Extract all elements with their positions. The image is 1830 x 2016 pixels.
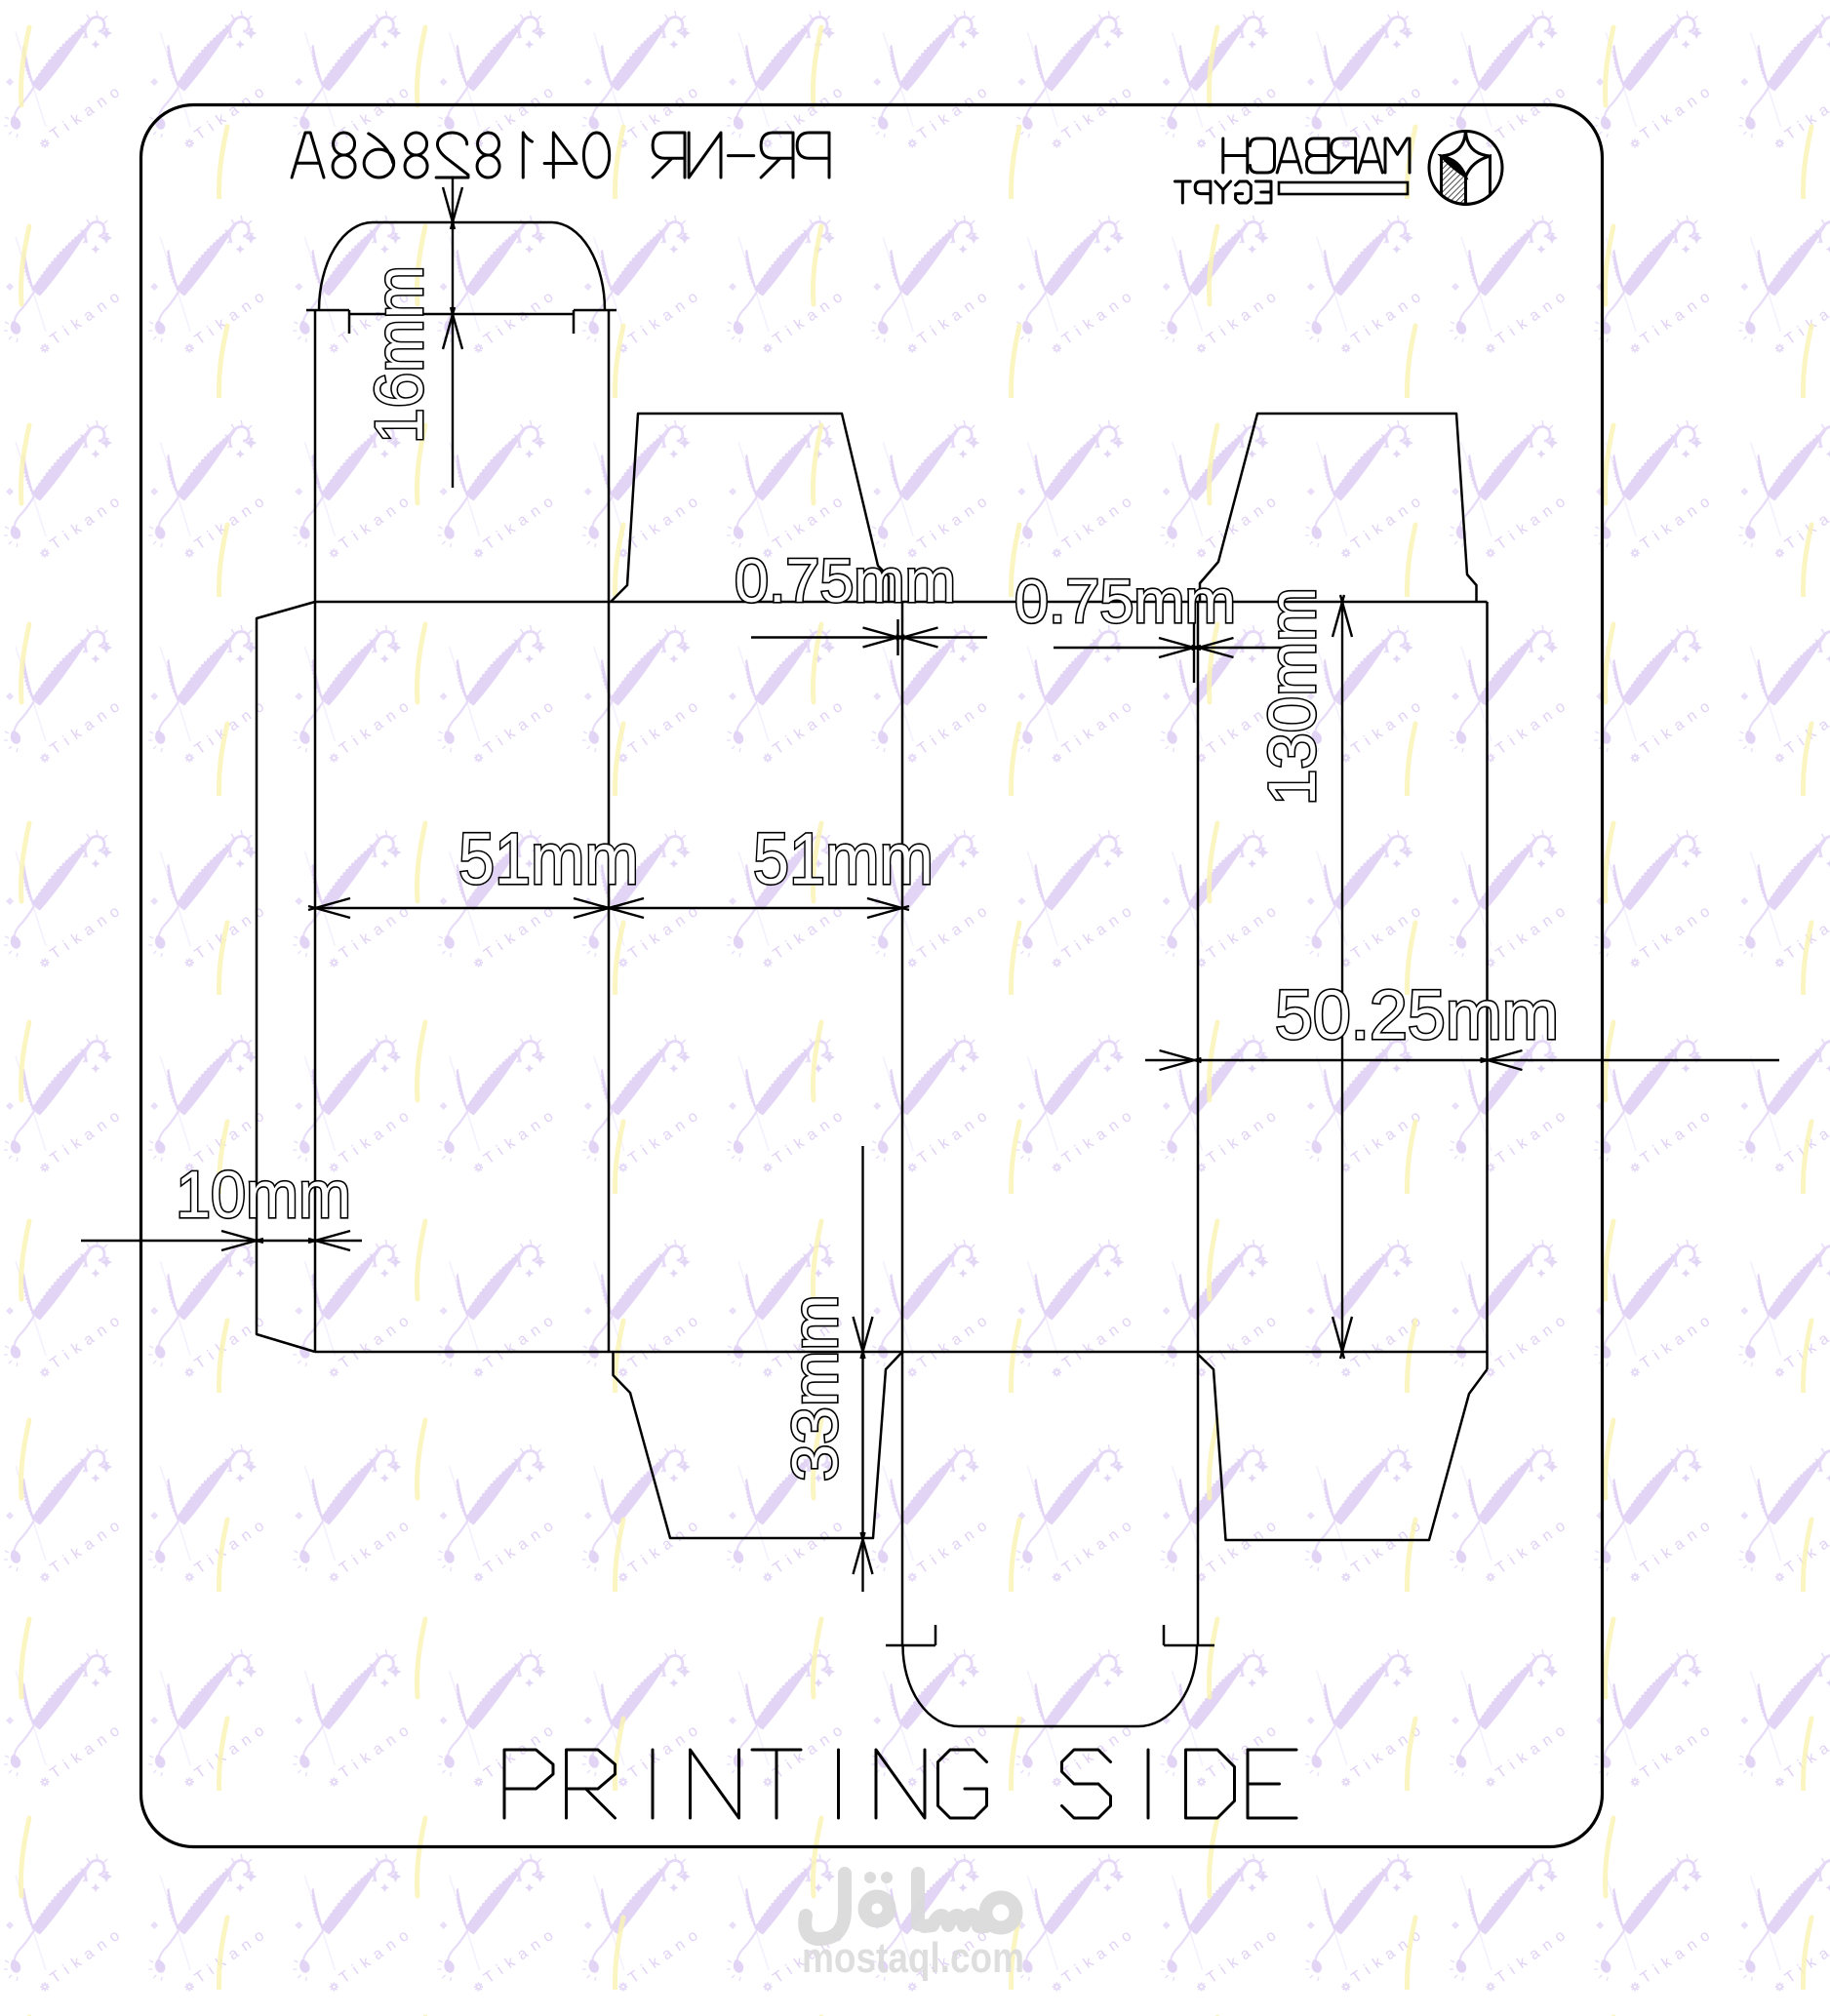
- svg-text:10mm: 10mm: [176, 1158, 351, 1232]
- svg-text:mostaql.com: mostaql.com: [802, 1934, 1024, 1982]
- svg-text:51mm: 51mm: [458, 818, 639, 899]
- svg-text:33mm: 33mm: [778, 1294, 851, 1482]
- svg-text:51mm: 51mm: [753, 818, 934, 899]
- svg-text:0.75mm: 0.75mm: [735, 547, 956, 615]
- svg-text:0.75mm: 0.75mm: [1014, 568, 1236, 636]
- svg-text:50.25mm: 50.25mm: [1275, 977, 1559, 1054]
- svg-text:16mm: 16mm: [361, 265, 437, 444]
- svg-text:130mm: 130mm: [1254, 587, 1330, 806]
